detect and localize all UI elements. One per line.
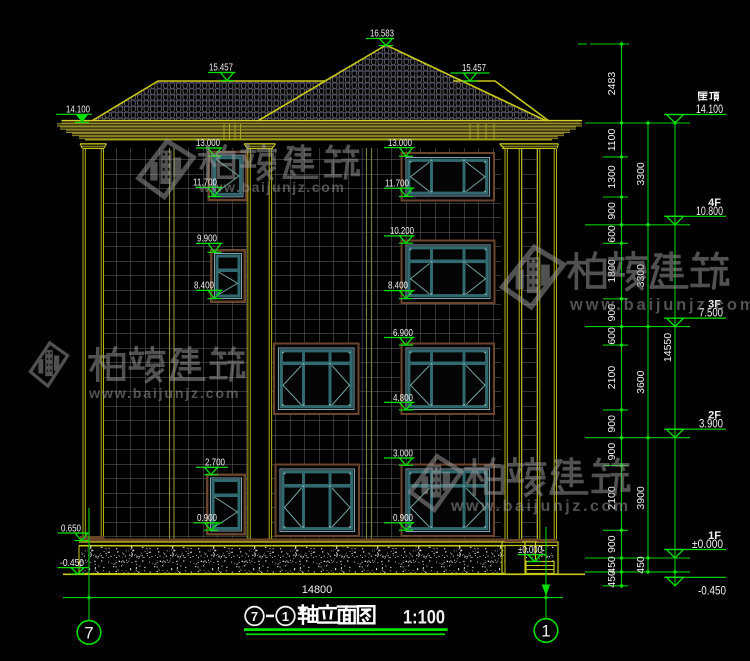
svg-text:1: 1	[541, 622, 550, 641]
svg-text:www.baijunjz.com: www.baijunjz.com	[88, 386, 240, 402]
svg-text:7: 7	[251, 609, 258, 624]
svg-text:www.baijunjz.com: www.baijunjz.com	[569, 296, 750, 314]
svg-text:450: 450	[606, 570, 618, 588]
svg-text:-0.450: -0.450	[698, 586, 726, 598]
svg-text:10.800: 10.800	[696, 206, 723, 218]
svg-text:450: 450	[635, 556, 647, 574]
svg-text:www.baijunjz.com: www.baijunjz.com	[198, 179, 345, 195]
svg-text:1300: 1300	[606, 165, 618, 189]
svg-text:14.100: 14.100	[696, 104, 723, 116]
svg-text:3900: 3900	[635, 486, 647, 510]
svg-text:600: 600	[606, 327, 618, 345]
svg-text:1:100: 1:100	[403, 608, 445, 629]
svg-text:900: 900	[606, 415, 618, 433]
svg-text:3600: 3600	[635, 370, 647, 394]
svg-text:900: 900	[606, 443, 618, 461]
svg-text:2483: 2483	[606, 72, 618, 96]
svg-text:3.900: 3.900	[699, 419, 723, 431]
svg-text:600: 600	[606, 225, 618, 243]
svg-text:1100: 1100	[606, 129, 618, 152]
svg-text:2100: 2100	[606, 366, 618, 390]
svg-text:900: 900	[606, 535, 618, 553]
svg-text:7: 7	[84, 624, 93, 643]
svg-text:900: 900	[606, 202, 618, 220]
svg-text:1: 1	[282, 609, 289, 624]
svg-text:±0.000: ±0.000	[692, 539, 723, 551]
svg-text:14800: 14800	[302, 584, 333, 596]
svg-text:3300: 3300	[635, 162, 647, 186]
svg-text:14550: 14550	[662, 333, 674, 362]
svg-text:www.baijunjz.com: www.baijunjz.com	[450, 498, 631, 515]
